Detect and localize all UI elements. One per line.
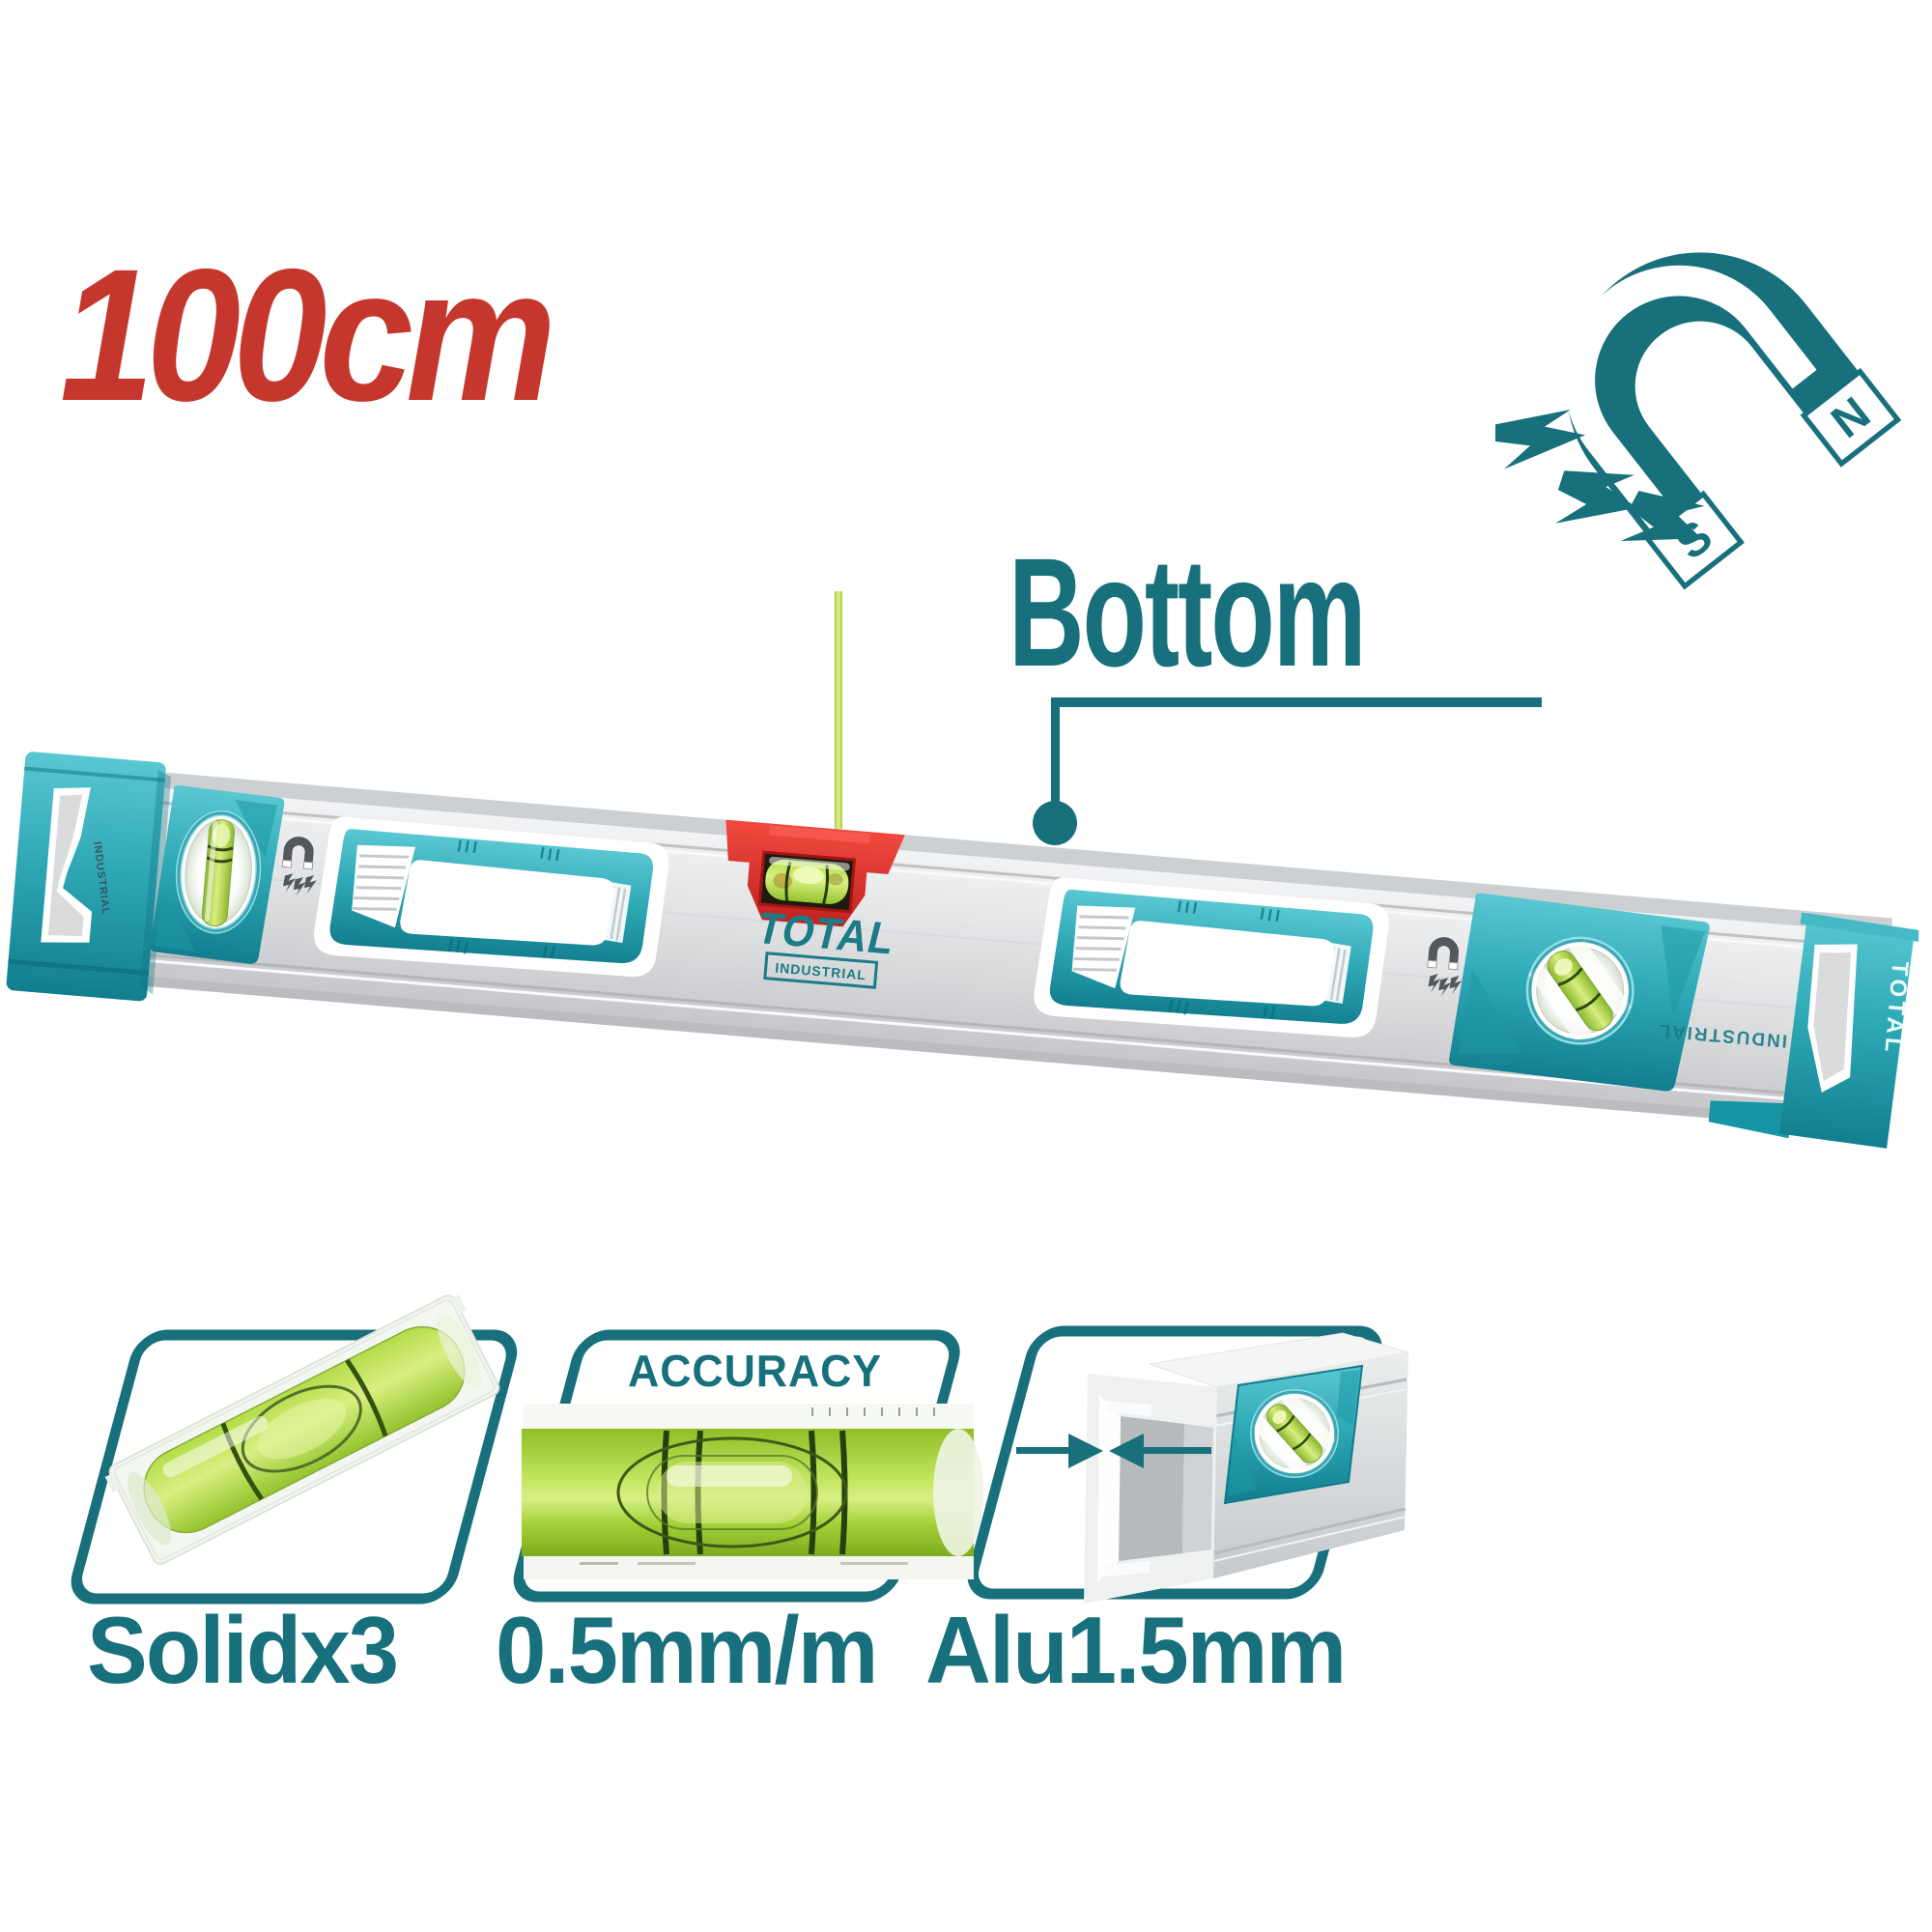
bottom-callout-leader [1033,697,1542,845]
hand-grip-right [1033,876,1391,1044]
diagonal-vial-unit [1448,892,1711,1094]
feature-label-accuracy: 0.5mm/m [496,1603,876,1697]
accuracy-heading: ACCURACY [628,1349,882,1393]
feature-label-aluminum: Alu1.5mm [925,1603,1345,1697]
size-callout: 100cm [60,241,549,430]
vial-refraction-line [835,591,842,829]
left-end-cap: INDUSTRIAL [6,752,172,1003]
bottom-callout-label: Bottom [1009,535,1364,690]
product-infographic: INDUSTRIAL [0,0,1932,1932]
hand-grip-left [312,815,670,983]
profile-wall [1097,1395,1121,1582]
leader-line-horizontal [1051,697,1542,707]
profile-photo-aluminum [1016,1333,1408,1604]
horseshoe-magnet-icon: S N [1495,211,1898,586]
spirit-level: INDUSTRIAL [6,752,1921,1151]
feature-label-solid: Solidx3 [87,1603,397,1697]
vial-photo-accuracy [522,1404,983,1579]
leader-line-vertical [1051,697,1060,808]
leader-dot [1033,801,1077,845]
